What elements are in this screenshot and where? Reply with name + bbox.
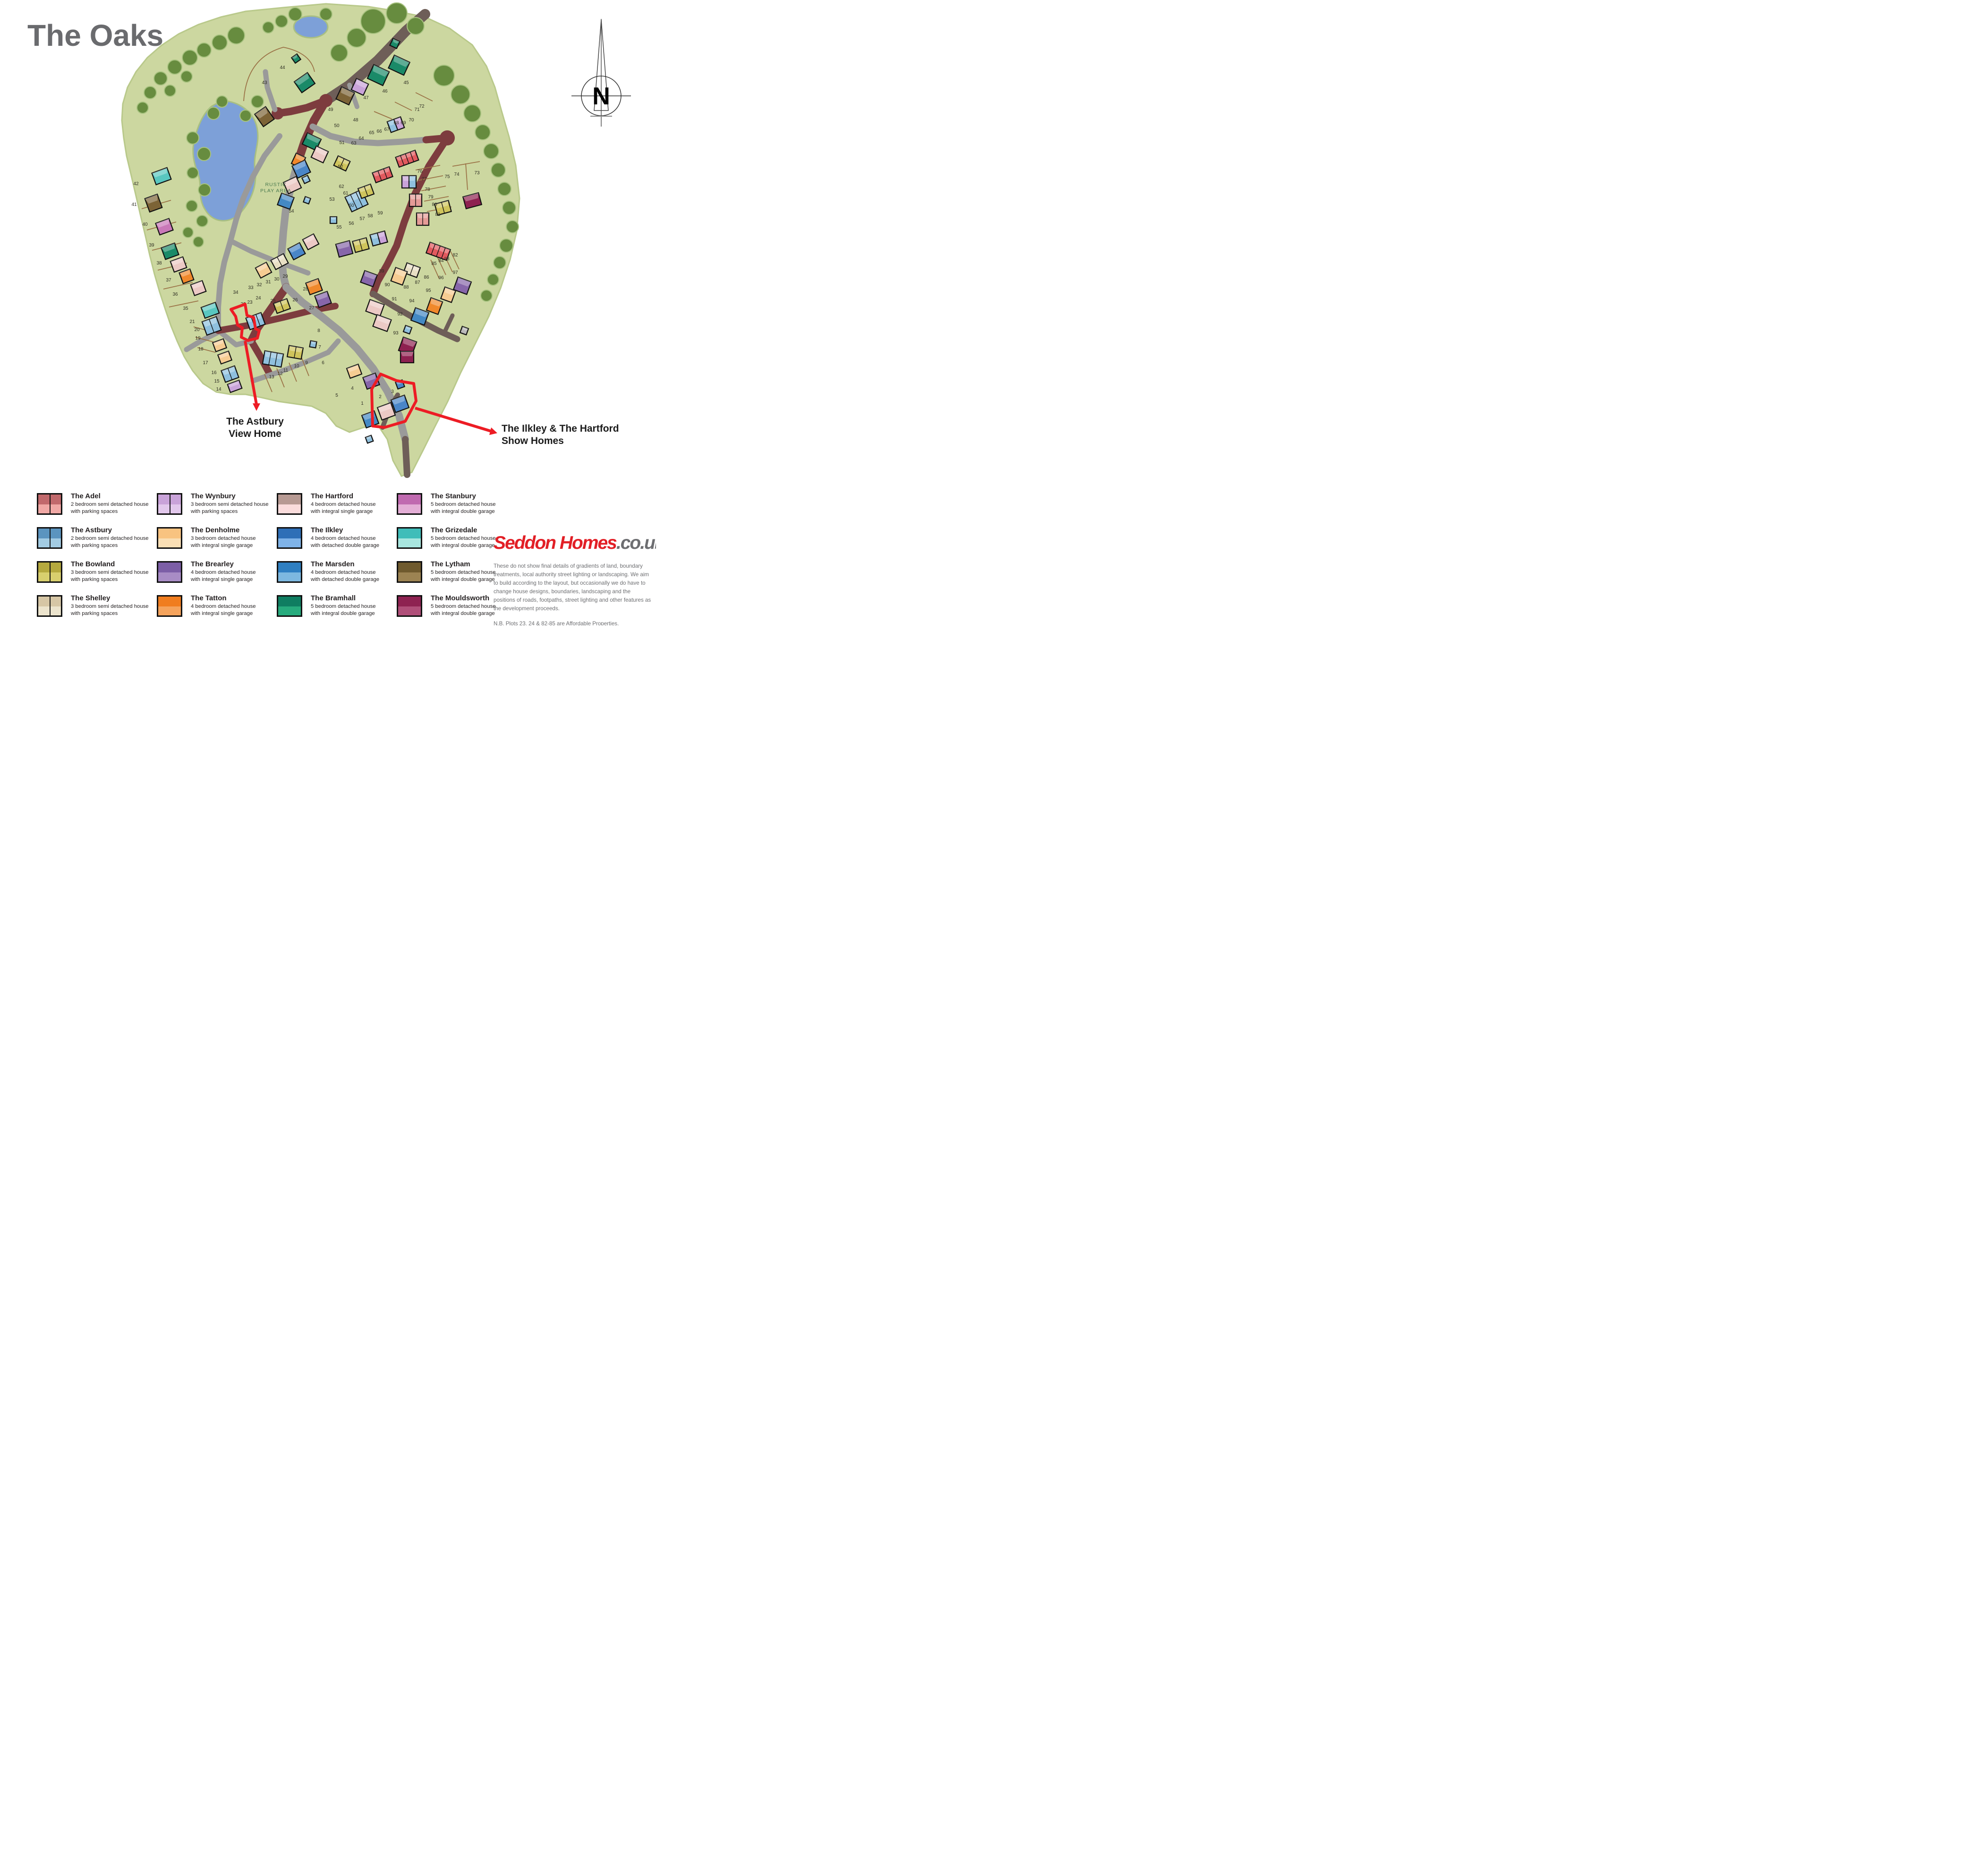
tree-icon (137, 102, 148, 113)
tree-icon (181, 71, 192, 82)
tree-icon (193, 237, 204, 247)
compass-north-icon: N (571, 18, 632, 129)
legend-item-the-brearley: The Brearley4 bedroom detached housewith… (157, 560, 275, 591)
plot-number-28: 28 (303, 287, 308, 292)
tree-icon (197, 147, 211, 161)
plot-number-92: 92 (397, 312, 403, 317)
plot-number-48: 48 (353, 118, 358, 123)
house-astbury (403, 325, 412, 334)
tree-icon (498, 182, 511, 196)
plot-number-29: 29 (282, 274, 288, 279)
house-type-name: The Stanbury (431, 492, 516, 500)
house-mouldsworth (400, 351, 414, 363)
plot-number-14: 14 (216, 387, 222, 392)
footer-branding: Seddon Homes.co.uk These do not show fin… (494, 533, 652, 625)
house-type-swatch-icon (397, 595, 422, 617)
plot-number-4: 4 (351, 386, 354, 391)
plot-number-42: 42 (133, 181, 139, 187)
house-type-description: 4 bedroom detached housewith integral si… (311, 501, 396, 515)
house-type-swatch-icon (37, 493, 62, 515)
legend-item-the-wynbury: The Wynbury3 bedroom semi detached house… (157, 492, 275, 523)
house-type-description: 2 bedroom semi detached housewith parkin… (71, 501, 156, 515)
plot-number-7: 7 (318, 345, 321, 350)
plot-number-3: 3 (391, 389, 394, 394)
plot-number-21: 21 (189, 319, 195, 324)
plot-number-18: 18 (198, 347, 204, 352)
plot-number-60: 60 (349, 203, 354, 208)
tree-icon (289, 8, 302, 21)
plot-number-85: 85 (431, 261, 437, 266)
plot-number-68: 68 (393, 120, 399, 126)
plot-number-17: 17 (203, 360, 208, 366)
legend-item-the-shelley: The Shelley3 bedroom semi detached house… (37, 594, 155, 625)
tree-icon (320, 8, 332, 20)
plot-number-96: 96 (438, 275, 444, 281)
tree-icon (484, 144, 499, 159)
plot-number-32: 32 (256, 282, 262, 288)
plot-number-8: 8 (317, 328, 320, 333)
page-title: The Oaks (27, 18, 163, 53)
house-type-swatch-icon (277, 595, 302, 617)
tree-icon (487, 274, 499, 285)
plot-number-19: 19 (195, 336, 201, 341)
house-type-description: 2 bedroom semi detached housewith parkin… (71, 535, 156, 549)
tree-icon (168, 60, 182, 74)
plot-number-93: 93 (393, 331, 399, 336)
tree-icon (197, 43, 211, 57)
house-type-name: The Wynbury (191, 492, 276, 500)
house-type-swatch-icon (397, 493, 422, 515)
legend-item-the-marsden: The Marsden4 bedroom detached housewith … (277, 560, 395, 591)
house-type-description: 3 bedroom semi detached housewith parkin… (191, 501, 276, 515)
plot-number-10: 10 (294, 364, 299, 369)
tree-icon (263, 22, 274, 33)
plot-number-5: 5 (335, 393, 338, 398)
plot-number-49: 49 (328, 107, 333, 112)
house-type-swatch-icon (157, 561, 182, 583)
tree-icon (500, 239, 513, 252)
plot-number-20: 20 (194, 327, 200, 333)
plot-number-79: 79 (428, 195, 434, 200)
plot-number-41: 41 (131, 202, 137, 207)
tree-icon (481, 290, 492, 301)
plot-number-52: 52 (338, 164, 343, 170)
plot-number-6: 6 (322, 360, 324, 366)
plot-number-43: 43 (262, 80, 267, 85)
tree-icon (144, 86, 156, 99)
house-type-swatch-icon (37, 527, 62, 549)
plot-number-94: 94 (409, 298, 415, 304)
plot-number-97: 97 (452, 270, 458, 275)
plot-number-44: 44 (280, 65, 285, 70)
tree-icon (251, 95, 264, 108)
house-adel (409, 194, 422, 206)
disclaimer-text: These do not show final details of gradi… (494, 562, 652, 613)
plot-number-39: 39 (149, 243, 154, 248)
tree-icon (216, 96, 228, 107)
plot-number-35: 35 (183, 306, 188, 311)
plot-number-72: 72 (419, 104, 425, 109)
house-brearley (336, 241, 353, 257)
plot-number-66: 66 (376, 129, 382, 134)
plot-number-51: 51 (339, 140, 345, 145)
legend-item-the-stanbury: The Stanbury5 bedroom detached housewith… (397, 492, 515, 523)
plot-number-67: 67 (384, 127, 390, 132)
house-astbury (366, 435, 374, 443)
tree-icon (182, 50, 197, 65)
plot-number-95: 95 (426, 288, 431, 293)
house-type-name: The Marsden (311, 560, 396, 568)
house-garage (460, 326, 469, 335)
house-type-swatch-icon (37, 561, 62, 583)
plot-number-73: 73 (474, 171, 480, 176)
plot-number-87: 87 (415, 280, 420, 285)
tree-icon (196, 215, 208, 227)
plot-number-56: 56 (349, 221, 354, 226)
house-type-name: The Bowland (71, 560, 156, 568)
plot-number-61: 61 (343, 191, 349, 196)
plot-number-11: 11 (283, 368, 289, 373)
plot-number-64: 64 (358, 136, 364, 141)
tree-icon (228, 27, 245, 44)
tree-icon (464, 105, 481, 122)
house-type-description: 3 bedroom detached housewith integral si… (191, 535, 276, 549)
plot-number-86: 86 (424, 275, 429, 280)
house-type-swatch-icon (397, 561, 422, 583)
plot-number-31: 31 (265, 280, 271, 285)
astbury-view-home-label: The AstburyView Home (203, 416, 307, 441)
tree-icon (275, 15, 288, 27)
house-astbury (330, 217, 337, 223)
tree-icon (407, 17, 424, 34)
plot-number-9: 9 (305, 360, 308, 366)
house-type-description: 5 bedroom detached housewith integral do… (311, 603, 396, 617)
plot-number-36: 36 (172, 292, 178, 297)
tree-icon (386, 3, 407, 24)
plot-number-55: 55 (336, 225, 342, 230)
house-adel (417, 213, 429, 225)
tree-icon (186, 200, 197, 212)
house-type-name: The Brearley (191, 560, 276, 568)
plot-number-88: 88 (403, 285, 409, 290)
plot-number-81: 81 (435, 212, 441, 217)
tree-icon (331, 44, 348, 61)
plot-number-82: 82 (452, 253, 458, 258)
tree-icon (187, 167, 198, 179)
plot-number-83: 83 (444, 256, 450, 262)
plot-number-78: 78 (425, 187, 430, 192)
plot-number-50: 50 (334, 123, 340, 128)
tree-icon (506, 221, 519, 233)
house-astbury (309, 341, 316, 348)
house-type-name: The Bramhall (311, 594, 396, 602)
compass-n-label: N (592, 83, 610, 110)
plot-number-53: 53 (329, 197, 335, 202)
legend-item-the-bowland: The Bowland3 bedroom semi detached house… (37, 560, 155, 591)
legend-item-the-astbury: The Astbury2 bedroom semi detached house… (37, 526, 155, 557)
legend-item-the-denholme: The Denholme3 bedroom detached housewith… (157, 526, 275, 557)
tree-icon (164, 85, 176, 96)
plot-number-38: 38 (156, 261, 162, 266)
plot-number-84: 84 (438, 258, 444, 264)
plot-number-23: 23 (247, 300, 253, 305)
house-wynbury (402, 176, 416, 188)
house-type-swatch-icon (277, 493, 302, 515)
plot-number-65: 65 (369, 130, 375, 136)
house-astbury (303, 196, 310, 204)
house-type-name: The Hartford (311, 492, 396, 500)
tree-icon (361, 9, 385, 34)
tree-icon (475, 125, 490, 140)
house-type-name: The Astbury (71, 526, 156, 534)
house-type-swatch-icon (277, 561, 302, 583)
plot-number-30: 30 (274, 277, 280, 282)
tree-icon (503, 201, 516, 214)
plot-number-24: 24 (256, 296, 261, 301)
legend-item-the-hartford: The Hartford4 bedroom detached housewith… (277, 492, 395, 523)
house-type-description: 4 bedroom detached housewith detached do… (311, 569, 396, 583)
house-type-swatch-icon (37, 595, 62, 617)
tree-icon (207, 107, 220, 119)
plot-number-26: 26 (292, 298, 298, 303)
plot-number-69: 69 (400, 120, 406, 126)
plot-number-46: 46 (382, 89, 388, 94)
house-type-description: 3 bedroom semi detached housewith parkin… (71, 603, 156, 617)
house-type-name: The Tatton (191, 594, 276, 602)
house-bowland (287, 346, 303, 359)
show-homes-label: The Ilkley & The HartfordShow Homes (502, 423, 643, 448)
plot-number-45: 45 (403, 80, 409, 85)
plot-number-63: 63 (351, 141, 357, 146)
house-type-description: 3 bedroom semi detached housewith parkin… (71, 569, 156, 583)
house-type-swatch-icon (277, 527, 302, 549)
plot-number-34: 34 (233, 290, 239, 295)
plot-number-58: 58 (367, 213, 373, 219)
plot-number-40: 40 (142, 222, 148, 227)
plot-number-1: 1 (361, 401, 364, 406)
tree-icon (491, 163, 505, 177)
plot-number-70: 70 (409, 118, 414, 123)
plot-number-91: 91 (392, 297, 397, 302)
house-type-name: The Ilkley (311, 526, 396, 534)
plot-number-80: 80 (432, 202, 437, 207)
plot-number-77: 77 (421, 177, 427, 182)
plot-number-12: 12 (277, 371, 283, 376)
house-type-swatch-icon (397, 527, 422, 549)
plot-number-2: 2 (379, 394, 382, 400)
plot-number-25: 25 (270, 298, 276, 304)
show-homes-arrowhead-icon (489, 427, 497, 435)
plot-number-54: 54 (289, 209, 294, 214)
legend-item-the-ilkley: The Ilkley4 bedroom detached housewith d… (277, 526, 395, 557)
tree-icon (494, 256, 506, 269)
plot-number-59: 59 (377, 211, 383, 216)
plot-number-16: 16 (211, 370, 217, 375)
plot-number-76: 76 (417, 169, 423, 174)
plot-number-89: 89 (379, 269, 384, 274)
house-type-name: The Adel (71, 492, 156, 500)
house-type-swatch-icon (157, 493, 182, 515)
tree-icon (240, 110, 251, 121)
plot-number-13: 13 (269, 375, 274, 380)
house-type-swatch-icon (157, 595, 182, 617)
legend-item-the-bramhall: The Bramhall5 bedroom detached housewith… (277, 594, 395, 625)
tree-icon (212, 35, 227, 50)
tree-icon (198, 184, 211, 196)
plot-number-90: 90 (384, 282, 390, 288)
house-astbury (263, 351, 283, 367)
house-type-swatch-icon (157, 527, 182, 549)
house-type-description: 4 bedroom detached housewith integral si… (191, 569, 276, 583)
seddon-homes-logo[interactable]: Seddon Homes.co.uk (494, 533, 652, 554)
legend-item-the-tatton: The Tatton4 bedroom detached housewith i… (157, 594, 275, 625)
plot-number-37: 37 (166, 278, 171, 283)
tree-icon (347, 28, 366, 47)
plot-number-62: 62 (339, 184, 344, 189)
tree-icon (187, 132, 199, 144)
plot-number-57: 57 (359, 216, 365, 222)
house-type-name: The Shelley (71, 594, 156, 602)
plot-number-15: 15 (214, 379, 220, 384)
site-plan-page: 1234567891011121314151617181920212223242… (0, 0, 656, 625)
house-type-name: The Denholme (191, 526, 276, 534)
tree-icon (183, 227, 193, 238)
affordable-properties-note: N.B. Plots 23, 24 & 82-85 are Affordable… (494, 621, 652, 625)
tree-icon (154, 72, 167, 85)
house-type-description: 5 bedroom detached housewith integral do… (431, 501, 516, 515)
astbury-arrowhead-icon (253, 403, 260, 411)
house-type-description: 4 bedroom detached housewith integral si… (191, 603, 276, 617)
plot-number-27: 27 (309, 306, 315, 311)
plot-number-74: 74 (454, 172, 460, 177)
legend-item-the-adel: The Adel2 bedroom semi detached housewit… (37, 492, 155, 523)
plot-number-33: 33 (248, 285, 254, 290)
plot-number-47: 47 (363, 95, 369, 101)
tree-icon (451, 85, 470, 104)
house-type-description: 4 bedroom detached housewith detached do… (311, 535, 396, 549)
tree-icon (434, 65, 454, 86)
plot-number-75: 75 (444, 174, 450, 179)
